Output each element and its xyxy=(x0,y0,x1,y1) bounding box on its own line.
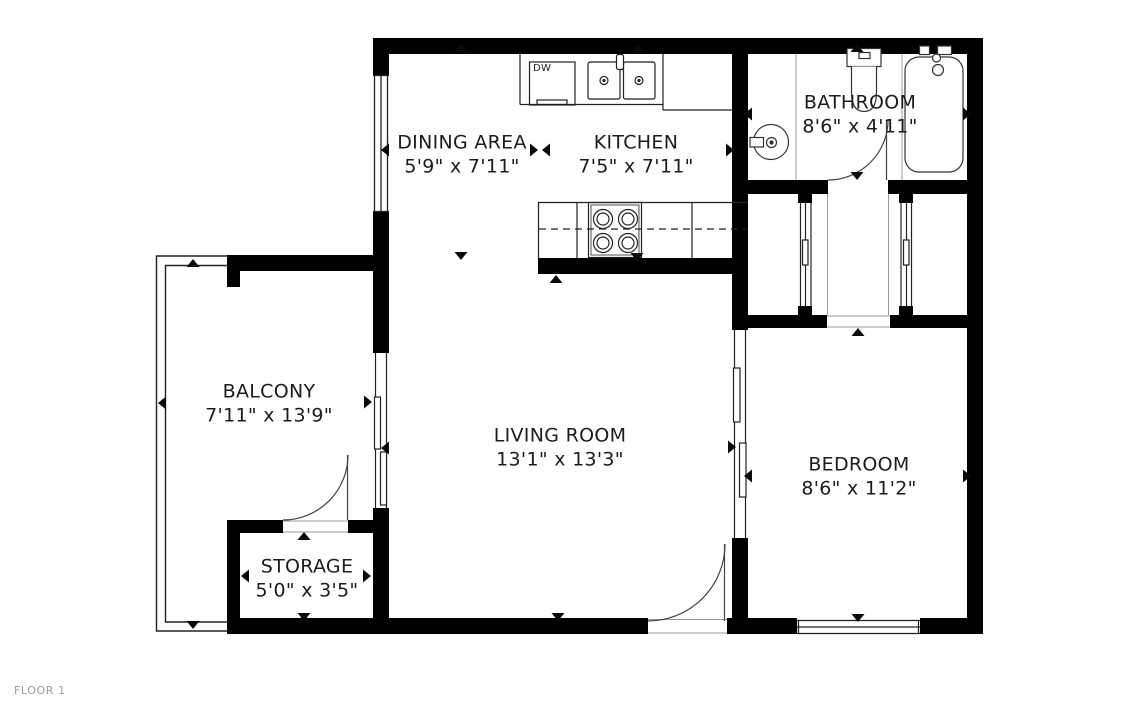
dining-window xyxy=(373,75,389,212)
balcony-railing xyxy=(157,256,228,631)
dimension-arrow xyxy=(455,252,468,260)
room-dimensions: 8'6" x 4'11" xyxy=(802,115,917,139)
wall-storage-right xyxy=(373,508,389,634)
room-name: LIVING ROOM xyxy=(494,425,627,449)
bedroom-sliding-partition xyxy=(734,330,747,538)
dimension-arrow xyxy=(363,570,371,583)
wall-closet-stub-tr xyxy=(899,194,913,203)
room-dimensions: 7'11" x 13'9" xyxy=(205,404,333,428)
closet-sliding-door-right xyxy=(901,203,912,306)
floor-indicator: FLOOR 1 xyxy=(14,684,66,697)
wall-storage-left xyxy=(227,520,240,634)
wall-closet-stub-bl xyxy=(798,306,812,315)
wall-kitchen-living xyxy=(538,258,748,274)
wall-partition-upper xyxy=(732,54,748,330)
entry-door xyxy=(648,544,725,621)
floor-plan-canvas xyxy=(0,0,1140,712)
wall-bathroom-bottom-left xyxy=(748,180,828,194)
dimension-arrow xyxy=(298,532,311,540)
room-label-storage: STORAGE 5'0" x 3'5" xyxy=(256,556,359,603)
wall-left-lower xyxy=(373,271,389,353)
room-name: DINING AREA xyxy=(397,132,527,156)
wall-bedroom-top-left xyxy=(732,315,827,328)
floor-plan: DINING AREA 5'9" x 7'11" KITCHEN 7'5" x … xyxy=(0,0,1140,712)
wall-storage-top-right xyxy=(348,520,373,533)
dimension-arrow xyxy=(851,172,864,180)
room-label-bathroom: BATHROOM 8'6" x 4'11" xyxy=(802,92,917,139)
kitchen-sink-icon xyxy=(588,55,655,100)
wall-closet-stub-br xyxy=(899,306,913,315)
wall-bottom-mid xyxy=(727,618,797,634)
wall-closet-stub-tl xyxy=(798,194,812,203)
room-label-balcony: BALCONY 7'11" x 13'9" xyxy=(205,381,333,428)
wall-balcony-stub-v xyxy=(227,271,240,287)
dimension-arrow xyxy=(158,397,166,410)
wall-left-upper xyxy=(373,38,389,75)
room-name: BATHROOM xyxy=(802,92,917,116)
dimension-arrow xyxy=(187,621,200,629)
room-dimensions: 13'1" x 13'3" xyxy=(494,448,627,472)
bedroom-window xyxy=(797,621,920,634)
wall-storage-top-left xyxy=(227,520,283,533)
wall-bedroom-top-right xyxy=(890,315,967,328)
dishwasher-label: DW xyxy=(533,63,551,74)
dimension-arrow xyxy=(364,396,372,409)
dimension-arrow xyxy=(241,570,249,583)
storage-door xyxy=(283,455,348,520)
dimension-arrow xyxy=(530,144,538,157)
room-name: BALCONY xyxy=(205,381,333,405)
wall-bathroom-bottom-right xyxy=(888,180,967,194)
dimension-arrow xyxy=(550,275,563,283)
room-label-dining-area: DINING AREA 5'9" x 7'11" xyxy=(397,132,527,179)
room-label-living-room: LIVING ROOM 13'1" x 13'3" xyxy=(494,425,627,472)
room-name: KITCHEN xyxy=(578,132,693,156)
wall-bottom-left xyxy=(227,618,648,634)
wall-bottom-right xyxy=(920,618,983,634)
dimension-arrow xyxy=(542,144,550,157)
room-dimensions: 8'6" x 11'2" xyxy=(801,477,916,501)
stove-icon xyxy=(589,203,642,258)
room-label-bedroom: BEDROOM 8'6" x 11'2" xyxy=(801,454,916,501)
wall-balcony-stub-h xyxy=(227,255,389,271)
room-label-kitchen: KITCHEN 7'5" x 7'11" xyxy=(578,132,693,179)
room-name: STORAGE xyxy=(256,556,359,580)
balcony-sliding-door xyxy=(375,353,387,508)
closet-sliding-door-left xyxy=(801,203,812,306)
room-name: BEDROOM xyxy=(801,454,916,478)
dimension-arrow xyxy=(187,259,200,267)
room-dimensions: 5'0" x 3'5" xyxy=(256,579,359,603)
room-dimensions: 5'9" x 7'11" xyxy=(397,155,527,179)
dimension-arrow xyxy=(852,328,865,336)
bathroom-sink-icon xyxy=(750,125,789,160)
room-dimensions: 7'5" x 7'11" xyxy=(578,155,693,179)
wall-right xyxy=(967,38,983,634)
dimension-arrow xyxy=(381,144,389,157)
